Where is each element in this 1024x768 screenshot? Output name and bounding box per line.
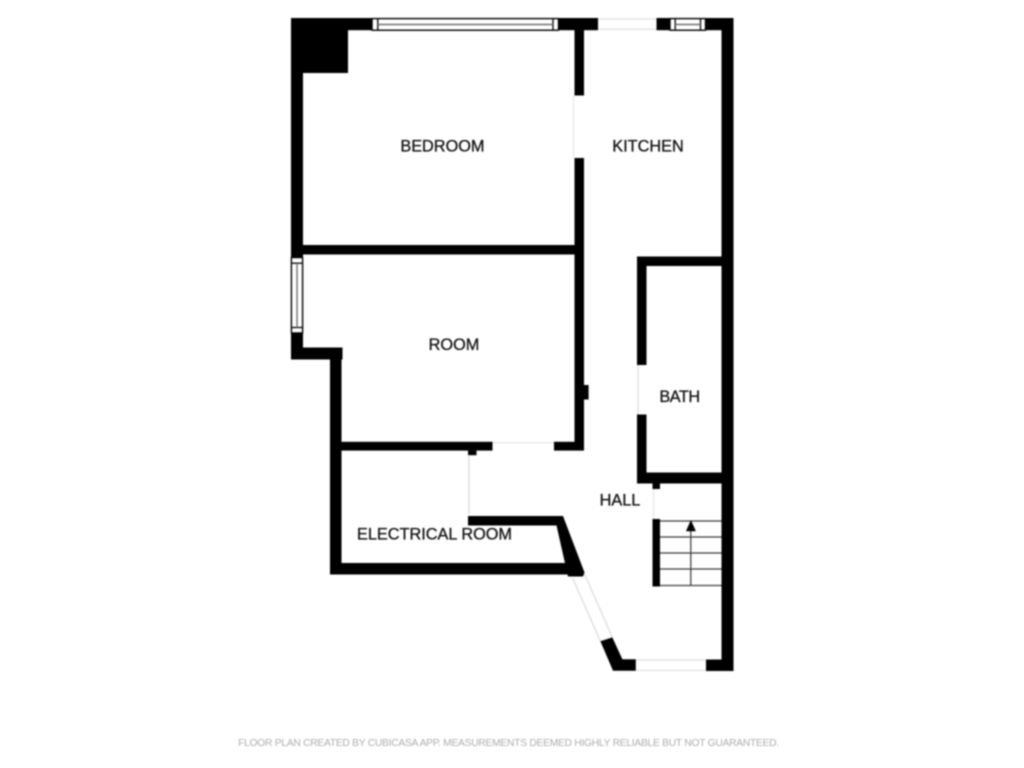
svg-text:FLOOR PLAN CREATED BY CUBICASA: FLOOR PLAN CREATED BY CUBICASA APP. MEAS…	[238, 738, 779, 749]
svg-text:BEDROOM: BEDROOM	[400, 137, 484, 155]
svg-text:ELECTRICAL ROOM: ELECTRICAL ROOM	[357, 526, 512, 544]
svg-text:HALL: HALL	[600, 492, 641, 510]
svg-text:ROOM: ROOM	[429, 336, 480, 354]
svg-text:KITCHEN: KITCHEN	[612, 137, 683, 155]
svg-text:BATH: BATH	[659, 388, 699, 406]
